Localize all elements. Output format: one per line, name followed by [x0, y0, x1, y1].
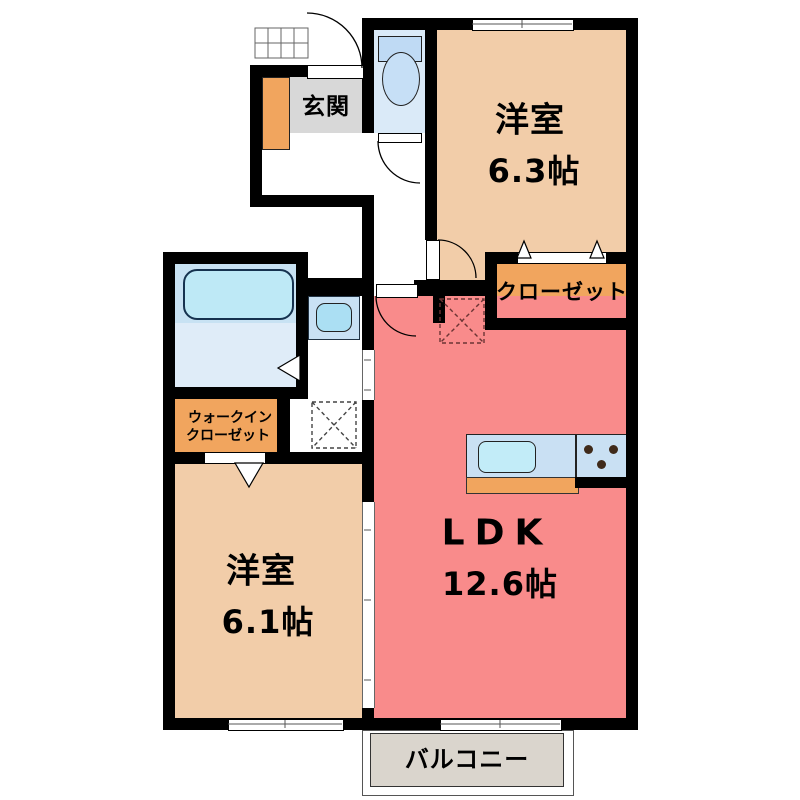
wall-hall-bottom — [250, 195, 374, 207]
washroom-sliding-door — [362, 350, 375, 400]
wall-wic-bottom — [163, 452, 374, 464]
stove-burner-3 — [597, 460, 606, 469]
wic-label-line2: クローゼット — [186, 425, 270, 445]
wash-basin-bowl — [316, 303, 352, 332]
ldk-name: LDK — [442, 513, 553, 554]
balcony-label: バルコニー — [405, 740, 530, 775]
kitchen-counter-divider — [575, 434, 577, 477]
bedroom-bottom-sliding-door — [362, 502, 375, 708]
ldk-door-leaf — [376, 284, 418, 298]
bedroom-top-door-leaf — [426, 240, 440, 280]
kitchen-sink — [478, 441, 536, 473]
wall-left-lower — [163, 252, 175, 730]
wic-opening — [205, 453, 265, 463]
wic-label-line1: ウォークイン — [188, 407, 272, 427]
bathtub — [183, 269, 294, 320]
entrance-porch — [255, 28, 308, 58]
stove-burner-1 — [584, 445, 593, 454]
bedroom-top-name: 洋室 — [495, 93, 565, 142]
wall-fridge-stub — [433, 296, 445, 323]
window-ldk — [440, 719, 562, 731]
bedroom-bottom-name: 洋室 — [226, 544, 296, 593]
wall-bath-top — [163, 252, 308, 264]
window-bedroom-bottom — [228, 719, 344, 731]
shoe-cabinet — [262, 77, 290, 150]
wall-closet-bottom — [485, 318, 626, 330]
stove-burner-2 — [609, 445, 618, 454]
floor-plan: 玄関 洋室 6.3帖 クローゼット ウォークイン クローゼット 洋室 6.1帖 … — [0, 0, 800, 800]
entrance-door-arc — [307, 13, 362, 68]
bedroom-bottom-size: 6.1帖 — [222, 597, 315, 643]
toilet-bowl — [382, 52, 420, 106]
bedroom-top-size: 6.3帖 — [488, 146, 581, 192]
ldk-size: 12.6帖 — [442, 559, 558, 605]
wall-right — [626, 18, 638, 730]
closet-opening — [517, 252, 607, 264]
wall-genkan-top — [250, 65, 307, 77]
ldk-floor — [374, 296, 626, 718]
corridor-floor — [373, 133, 425, 296]
washroom-floor-ext — [290, 390, 308, 452]
closet-label: クローゼット — [496, 276, 628, 306]
wall-kitchen-stub — [575, 477, 626, 488]
wall-toilet-right — [425, 30, 437, 240]
window-top — [472, 19, 574, 31]
bathroom-washing-area-floor — [175, 323, 296, 390]
entrance-door-leaf — [307, 65, 364, 79]
kitchen-counter-front — [466, 477, 579, 494]
genkan-label: 玄関 — [302, 87, 350, 121]
toilet-door-leaf — [378, 133, 422, 143]
wall-genkan-left — [250, 65, 262, 207]
wall-washroom-top — [296, 278, 374, 296]
